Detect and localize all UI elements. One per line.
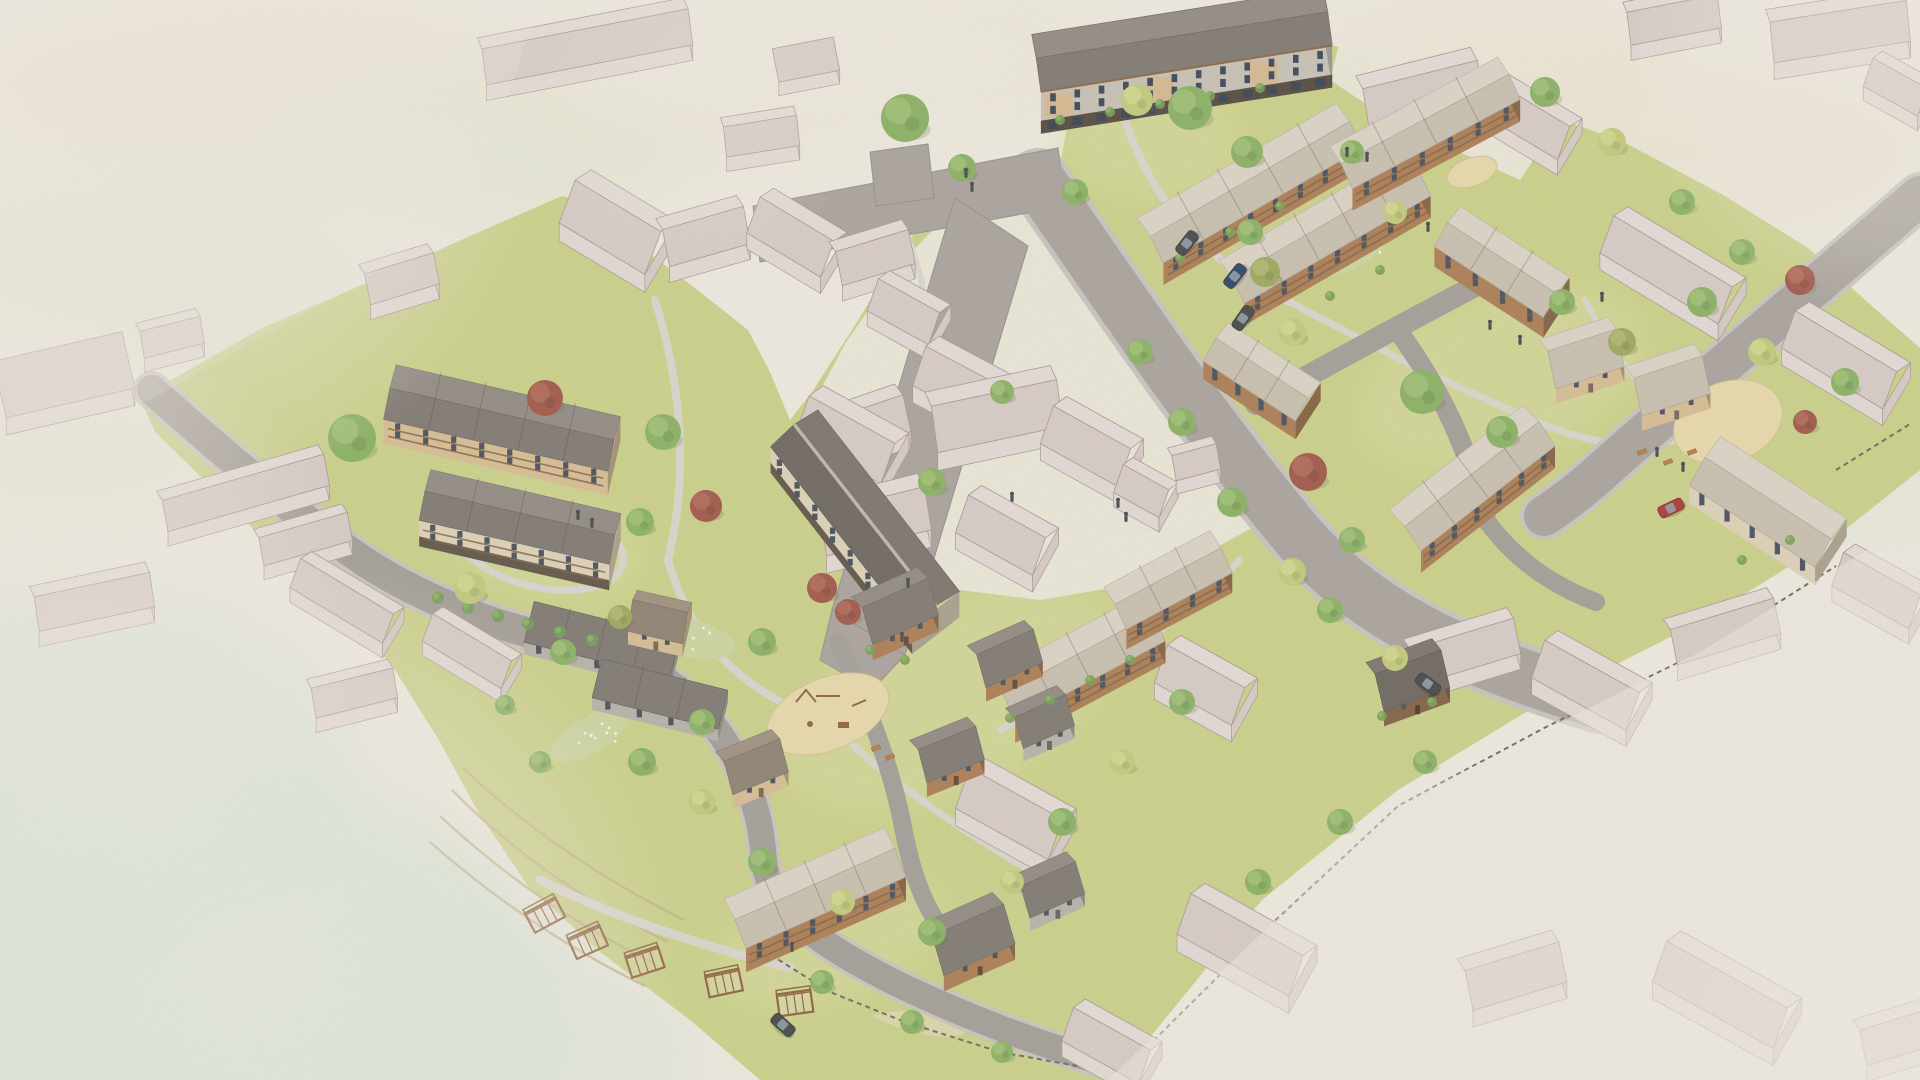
rendering-stage: Aerial axonometric architectural renderi… (0, 0, 1920, 1080)
site-plan-rendering: Aerial axonometric architectural renderi… (0, 0, 1920, 1080)
paper-grain-texture (0, 0, 1920, 1080)
